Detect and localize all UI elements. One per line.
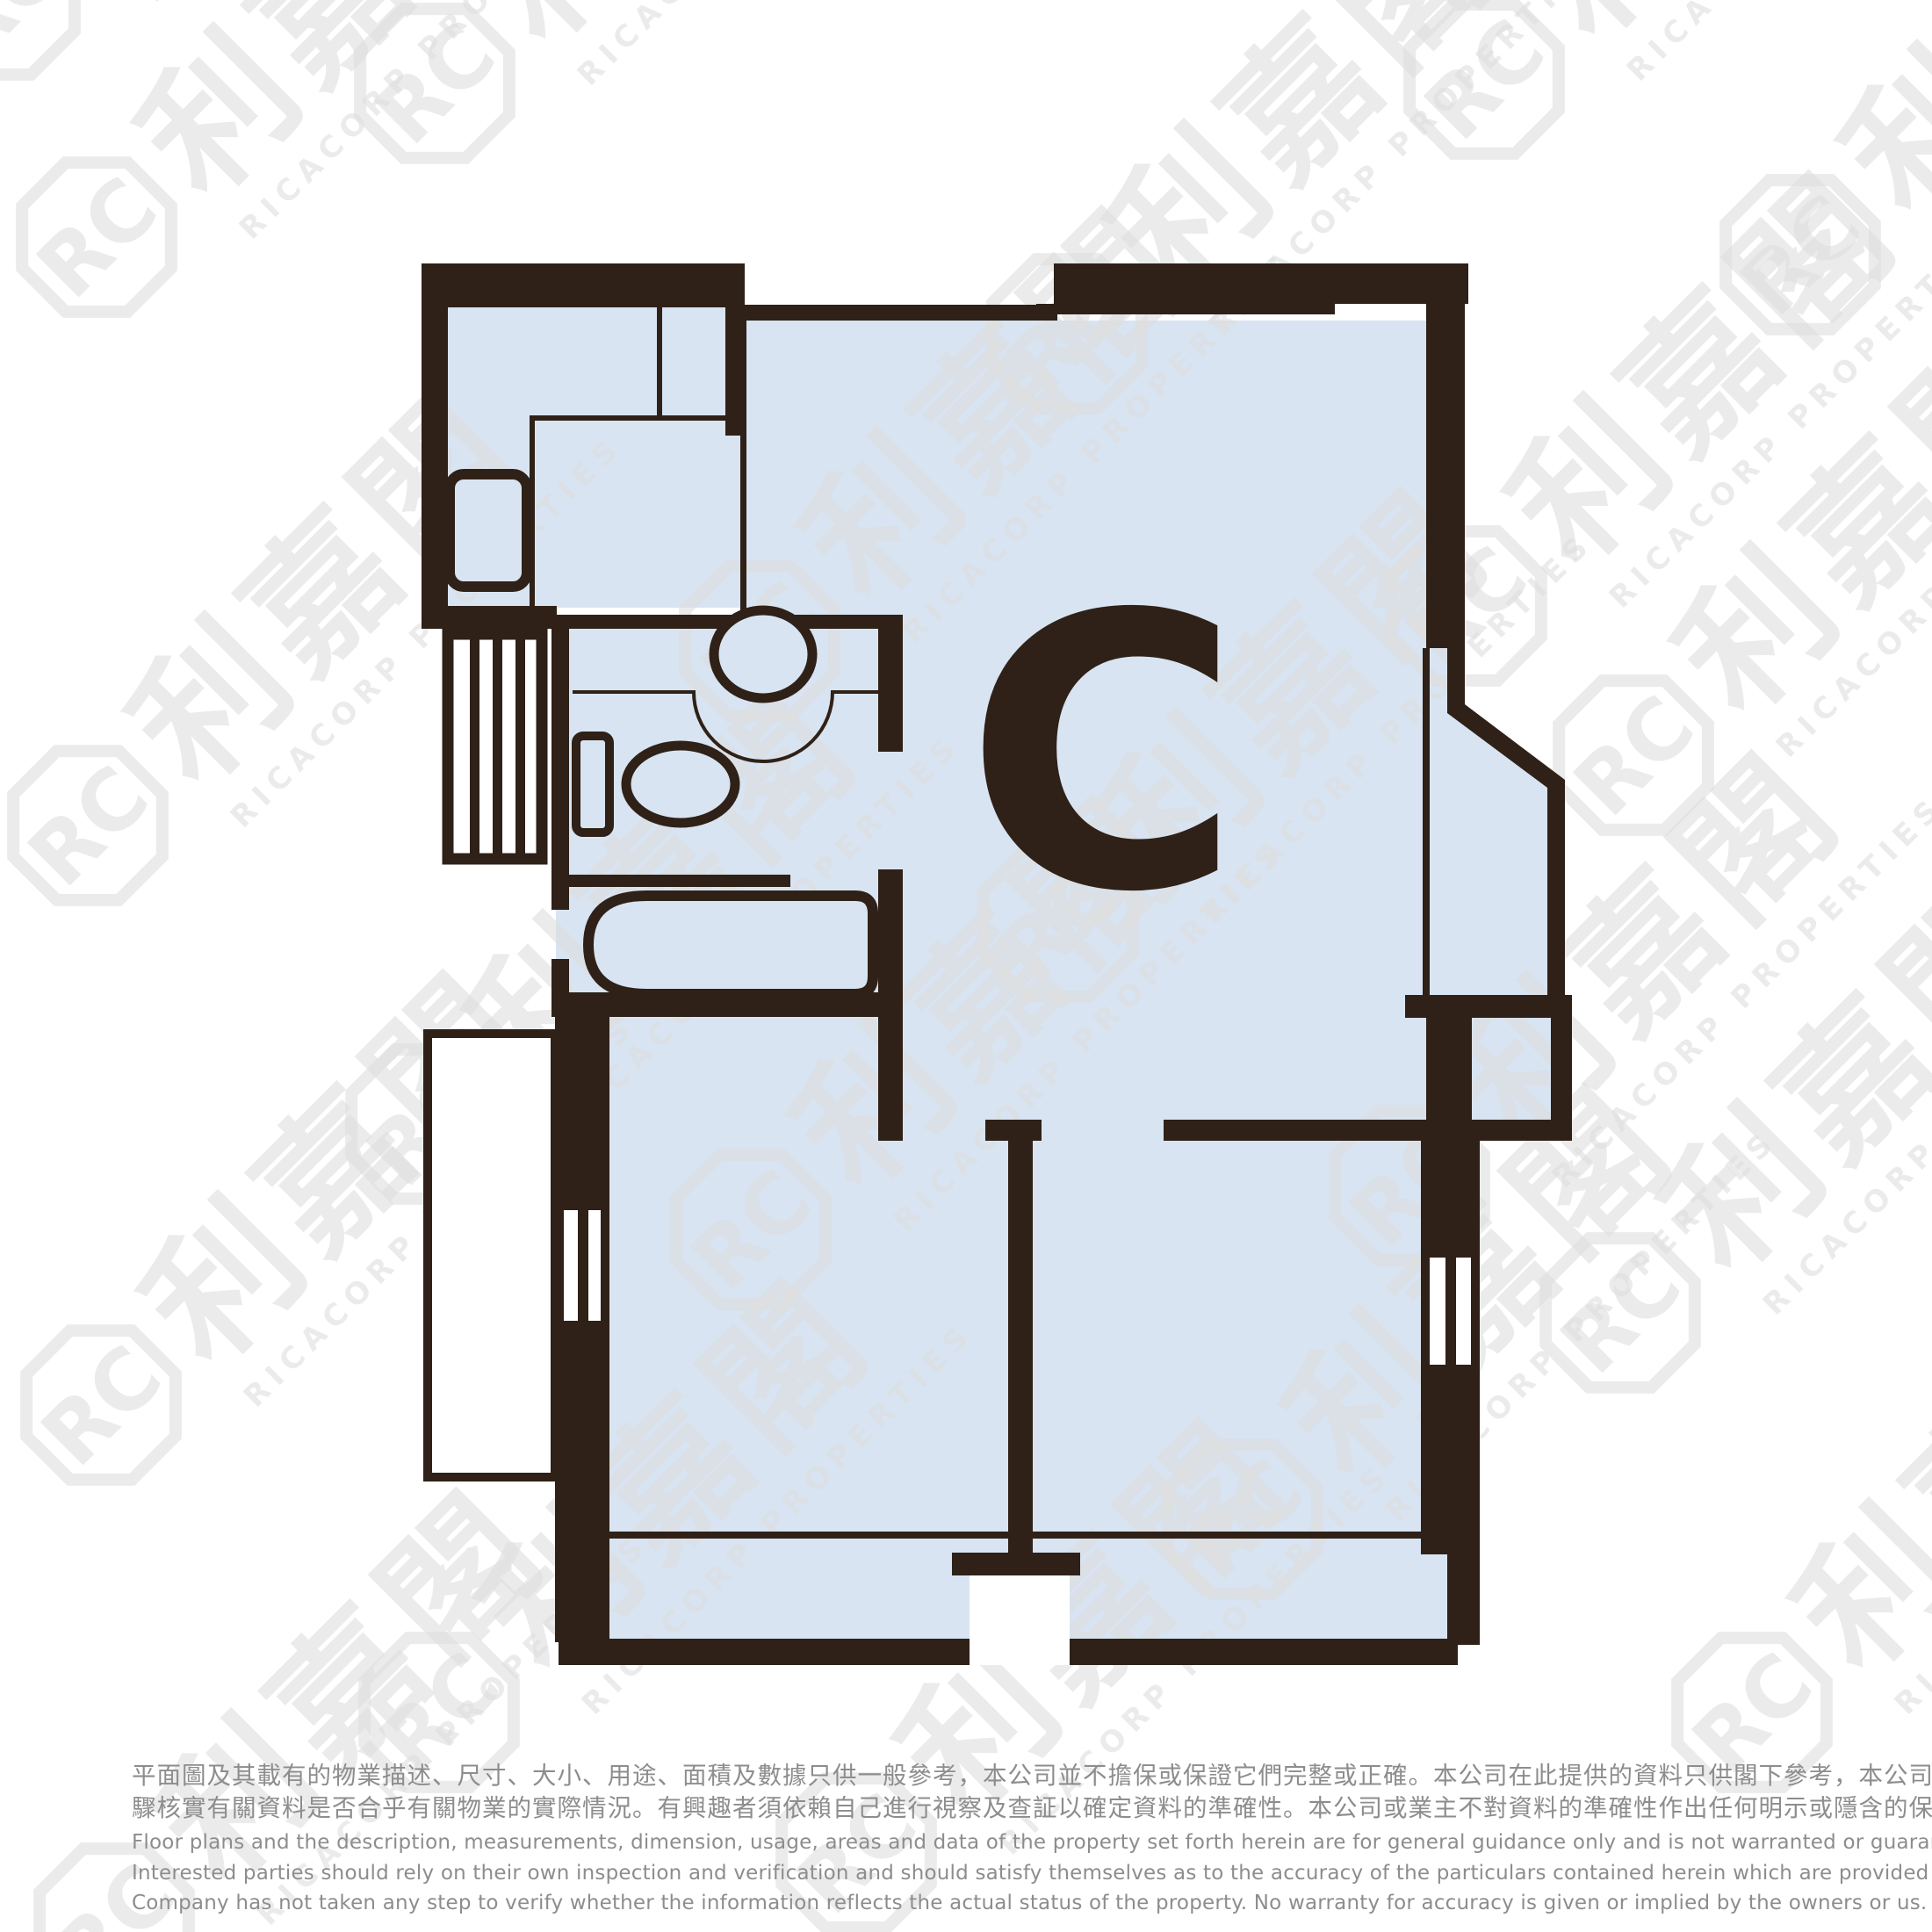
toilet-bowl — [626, 746, 735, 823]
bay-divider-line — [1423, 648, 1430, 998]
kitchen-partition-line — [740, 436, 746, 616]
disclaimer-line-en-2: Interested parties should rely on their … — [132, 1862, 1932, 1885]
top-right-wall — [1054, 263, 1468, 304]
bedroom1-baywindow-line — [609, 1532, 1008, 1539]
bedroom1-window — [555, 1210, 609, 1321]
bedroom2-top-wall — [1164, 1120, 1569, 1141]
bathtub — [588, 896, 873, 994]
kitchen-partition-wall — [725, 307, 746, 436]
balcony-outline — [428, 1034, 555, 1477]
disclaimer-line-zh-1: 平面圖及其載有的物業描述、尺寸、大小、用途、面積及數據只供一般參考，本公司並不擔… — [132, 1762, 1932, 1790]
floor-plan-page: RC 利嘉閣 RICACORP PROPERTIES — [0, 0, 1932, 1932]
right-upper-wall — [1426, 304, 1465, 648]
unit-label: C — [964, 536, 1242, 975]
top-right-wall-lip — [1036, 304, 1335, 314]
kitchen-sink — [450, 474, 527, 587]
bottom-recess — [970, 1575, 1070, 1665]
kitchen-top-wall — [422, 263, 745, 307]
kitchen-bottom-wall — [422, 606, 557, 629]
louver-window — [448, 634, 542, 859]
recess-cap-wall — [952, 1553, 1080, 1575]
bath-compartment-divider — [569, 875, 790, 887]
left-wall-bath-lower — [551, 959, 569, 1017]
bedroom1-left-wall — [555, 1017, 609, 1642]
disclaimer-line-zh-2: 驟核實有關資料是否合乎有關物業的實際情況。有興趣者須依賴自己進行視察及查証以確定… — [132, 1794, 1932, 1822]
floor-plan-canvas: RC 利嘉閣 RICACORP PROPERTIES — [0, 0, 1932, 1932]
kitchen-counter-divider-line — [657, 307, 662, 418]
bedroom-divider-stub — [985, 1120, 1042, 1141]
bathroom-basin — [714, 610, 812, 698]
disclaimer: 平面圖及其載有的物業描述、尺寸、大小、用途、面積及數據只供一般參考，本公司並不擔… — [132, 1762, 1932, 1914]
kitchen-left-wall — [422, 263, 448, 627]
left-wall-bath-upper — [551, 629, 569, 910]
toilet-tank — [576, 736, 609, 833]
bedroom2-right-strip-wall — [1447, 1539, 1480, 1645]
bedroom2-bottom-wall — [1070, 1639, 1458, 1665]
bedroom2-window — [1421, 1258, 1480, 1365]
bedroom1-bottom-wall — [559, 1639, 970, 1665]
bay-bottom-wall — [1405, 995, 1572, 1018]
disclaimer-line-en-1: Floor plans and the description, measure… — [132, 1831, 1932, 1854]
bedroom2-baywindow-line — [1033, 1532, 1421, 1539]
bedroom-divider-wall — [1008, 1141, 1033, 1554]
entrance-thin-wall — [745, 305, 1057, 321]
disclaimer-line-en-3: Company has not taken any step to verify… — [132, 1892, 1927, 1914]
bathroom-right-wall-upper — [878, 629, 903, 752]
